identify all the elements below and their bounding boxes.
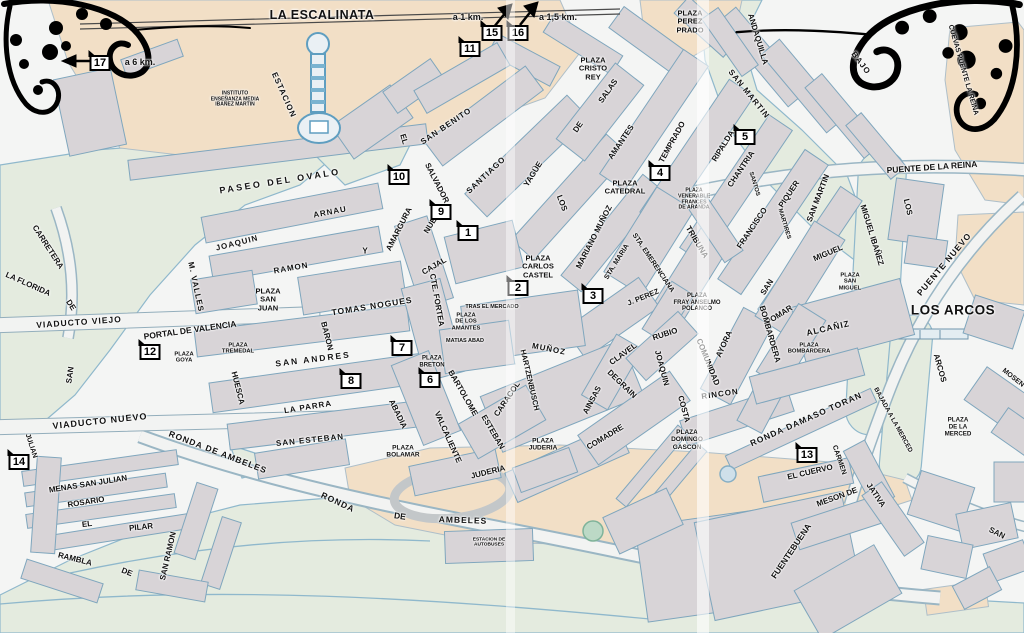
plaza-label-instituto-ense-anza-media-iba-ez-martin: INSTITUTOENSEÑANZA MEDIAIBAÑEZ MARTIN (211, 92, 259, 109)
distance-label-a-1-5-km: a 1,5 km. (539, 12, 577, 22)
plaza-label-plaza-perez-prado: PLAZAPEREZPRADO (676, 9, 703, 34)
poi-marker-13: 13 (797, 447, 818, 463)
poi-marker-10: 10 (389, 169, 410, 185)
plaza-label-plaza-goya: PLAZAGOYA (174, 352, 193, 365)
roundabout (720, 466, 736, 482)
poi-marker-15: 15 (482, 25, 503, 41)
poi-marker-1: 1 (458, 225, 479, 241)
street-label-el: EL (81, 519, 92, 529)
poi-marker-2: 2 (508, 280, 529, 296)
plaza-label-plaza-cristo-rey: PLAZACRISTOREY (579, 56, 607, 81)
distance-label-a-6-km: a 6 km. (125, 57, 156, 67)
plaza-label-plaza-domingo-gascon: PLAZADOMINGOGASCON (671, 429, 703, 451)
plaza-label-plaza-catedral: PLAZACATEDRAL (605, 180, 646, 197)
plaza-label-plaza-bombardera: PLAZABOMBARDERA (788, 343, 831, 356)
city-block (888, 178, 944, 246)
map-artwork (0, 0, 1024, 633)
plaza-label-estacion-de-autobuses: ESTACION DEAUTOBUSES (473, 538, 505, 549)
poi-marker-14: 14 (9, 454, 30, 470)
poi-marker-16: 16 (508, 25, 529, 41)
area-title-los-arcos: LOS ARCOS (911, 303, 995, 318)
plaza-label-plaza-bolamar: PLAZABOLAMAR (386, 445, 419, 460)
plaza-label-plaza-tremedal: PLAZATREMEDAL (222, 343, 254, 356)
poi-marker-7: 7 (392, 340, 413, 356)
poi-marker-6: 6 (420, 372, 441, 388)
roundabout (583, 521, 603, 541)
area-title-la-escalinata: LA ESCALINATA (270, 8, 375, 22)
street-label-de: DE (393, 510, 406, 522)
plaza-label-matias-abad: MATIAS ABAD (446, 338, 484, 344)
plaza-label-plaza-de-los-amantes: PLAZADE LOSAMANTES (452, 312, 481, 331)
plaza-label-plaza-fray-anselmo-polanco: PLAZAFRAY ANSELMOPOLANCO (673, 293, 720, 313)
distance-label-a-1-km: a 1 km. (453, 12, 484, 22)
poi-marker-8: 8 (341, 373, 362, 389)
poi-marker-9: 9 (431, 204, 452, 220)
poi-marker-4: 4 (650, 165, 671, 181)
plaza-label-plaza-san-miguel: PLAZASANMIGUEL (839, 272, 862, 291)
city-block (994, 462, 1024, 502)
poi-marker-11: 11 (460, 41, 481, 57)
plaza-label-plaza-de-la-merced: PLAZADE LAMERCED (945, 418, 972, 439)
street-label-y: Y (362, 247, 367, 256)
poi-marker-5: 5 (735, 129, 756, 145)
plaza-label-tras-el-mercado: TRAS EL MERCADO (465, 304, 518, 310)
plaza-label-plaza-san-juan: PLAZASANJUAN (256, 287, 281, 312)
poi-marker-3: 3 (583, 288, 604, 304)
plaza-label-plaza-juderia: PLAZAJUDERIA (529, 438, 558, 453)
plaza-label-plaza-carlos-castel: PLAZACARLOSCASTEL (522, 254, 554, 279)
poi-marker-17: 17 (90, 55, 111, 71)
city-map-teruel: LA ESCALINATA LOS ARCOS PASEO DEL OVALOE… (0, 0, 1024, 633)
street-label-ambeles: AMBELES (439, 514, 488, 526)
plaza-label-plaza-venerable-frances-de-aranda: PLAZAVENERABLEFRANCESDE ARANDA (678, 188, 710, 211)
poi-marker-12: 12 (140, 344, 161, 360)
